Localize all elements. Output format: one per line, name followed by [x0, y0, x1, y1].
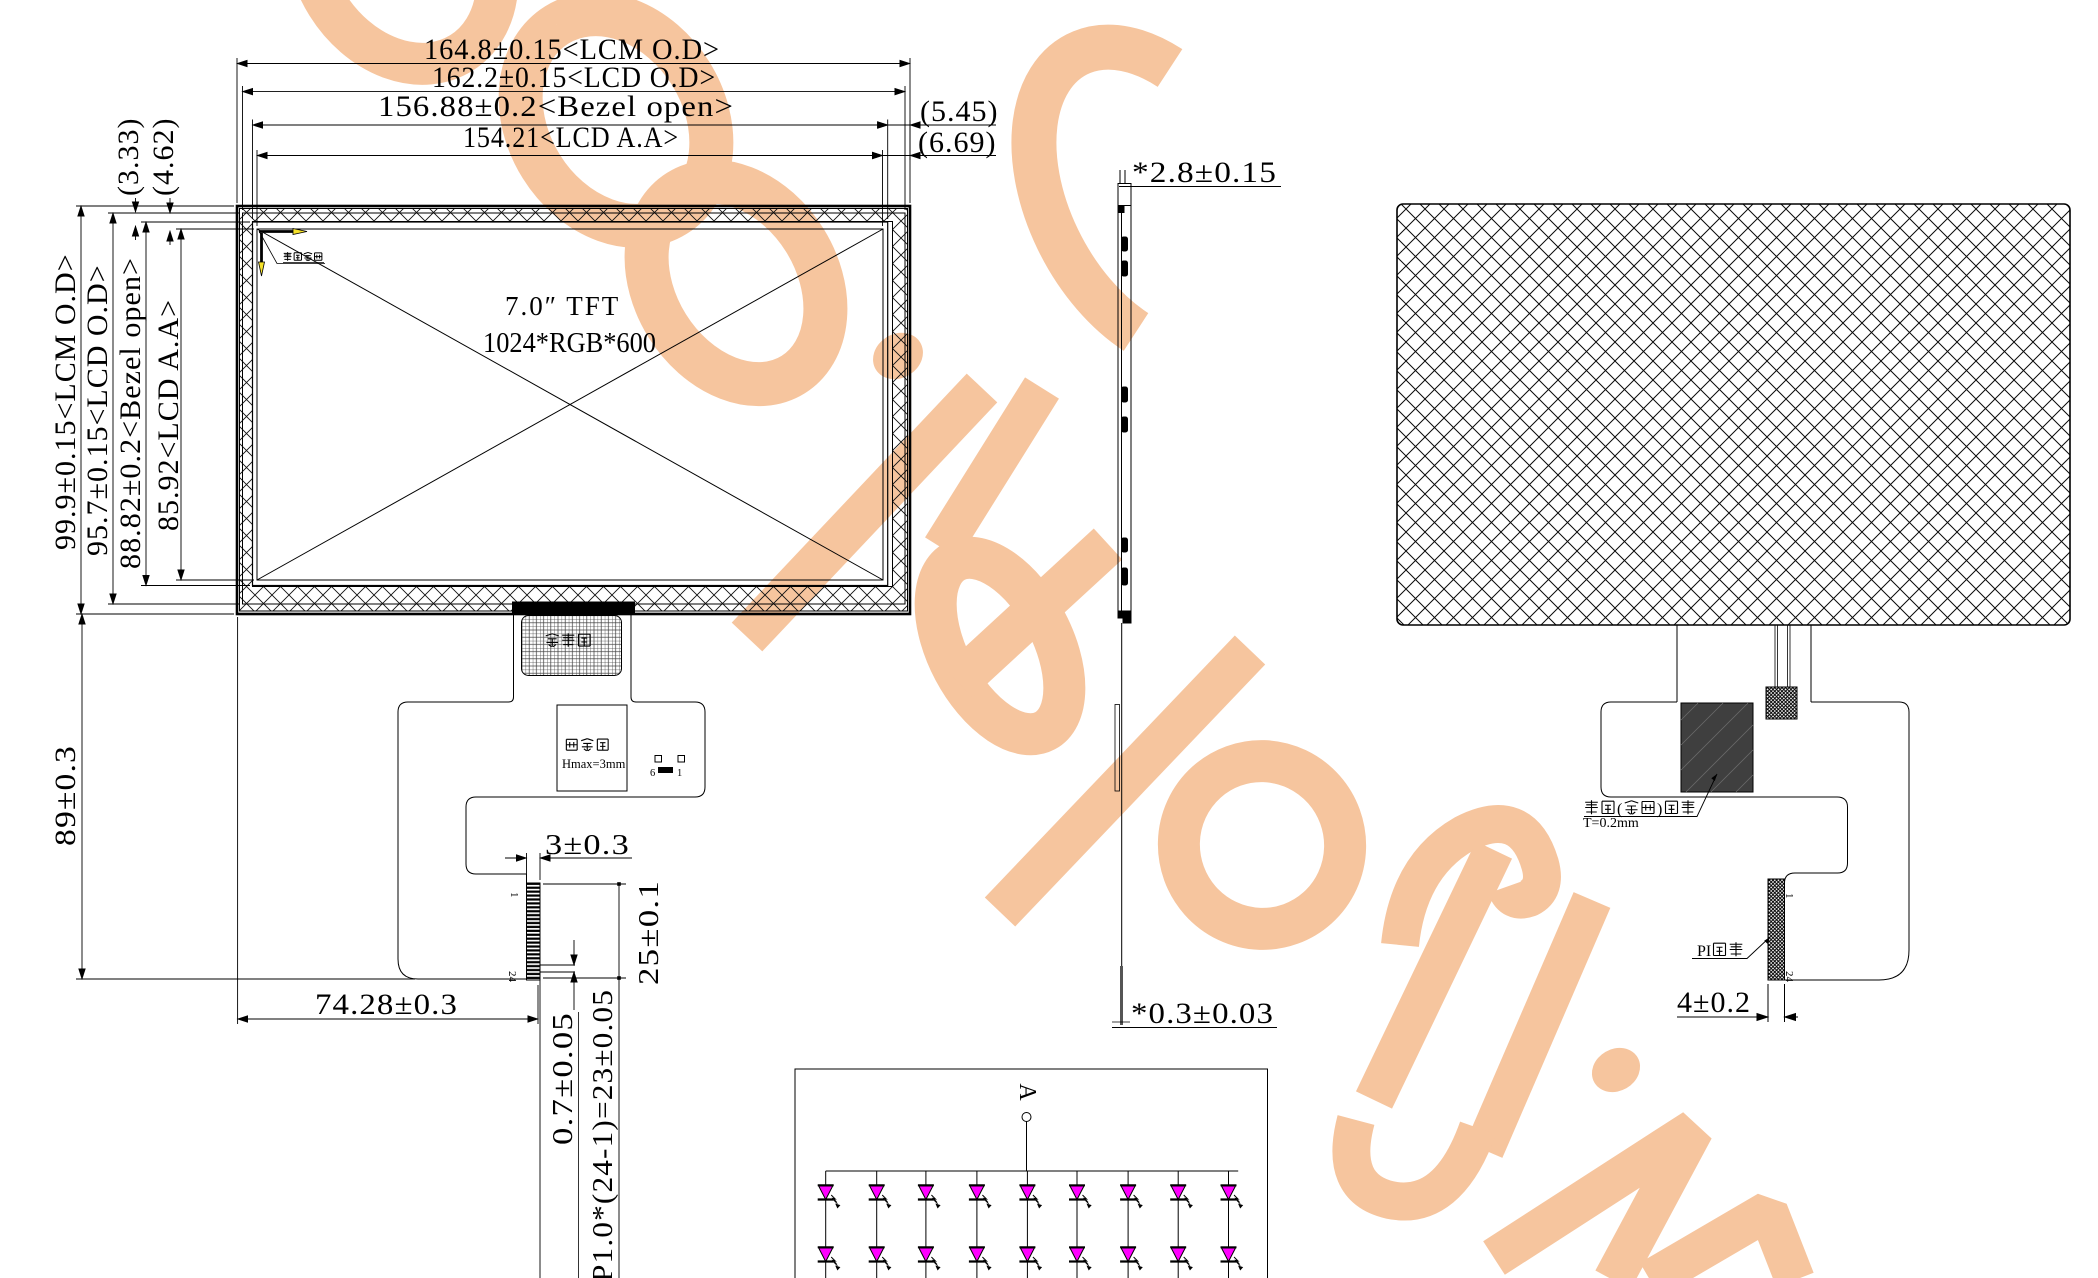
svg-text:P1.0*(24-1)=23±0.05: P1.0*(24-1)=23±0.05: [588, 989, 619, 1278]
svg-text:25±0.1: 25±0.1: [634, 880, 665, 985]
svg-text:*2.8±0.15: *2.8±0.15: [1132, 156, 1277, 189]
svg-text:99.9±0.15<LCM O.D>: 99.9±0.15<LCM O.D>: [49, 253, 82, 550]
svg-text:(3.33): (3.33): [112, 118, 145, 196]
svg-text:6: 6: [650, 768, 655, 779]
svg-text:(6.69): (6.69): [918, 126, 996, 159]
svg-text:156.88±0.2<Bezel open>: 156.88±0.2<Bezel open>: [378, 90, 734, 123]
svg-text:24: 24: [1783, 971, 1795, 983]
svg-text:): ): [1657, 801, 1662, 818]
svg-text:74.28±0.3: 74.28±0.3: [315, 988, 458, 1021]
svg-text:1: 1: [677, 768, 682, 779]
svg-text:95.7±0.15<LCD O.D>: 95.7±0.15<LCD O.D>: [81, 264, 114, 556]
svg-text:A: A: [1014, 1083, 1040, 1101]
svg-text:24: 24: [506, 971, 518, 983]
svg-text:(4.62): (4.62): [147, 118, 180, 196]
svg-text:4±0.2: 4±0.2: [1677, 986, 1751, 1019]
svg-text:3±0.3: 3±0.3: [545, 830, 630, 861]
svg-text:89±0.3: 89±0.3: [49, 745, 82, 846]
svg-text:PI: PI: [1697, 943, 1711, 960]
svg-text:1: 1: [1783, 893, 1795, 899]
svg-text:1: 1: [508, 892, 520, 898]
svg-text:88.82±0.2<Bezel open>: 88.82±0.2<Bezel open>: [114, 257, 147, 569]
svg-text:154.21<LCD A.A>: 154.21<LCD A.A>: [463, 121, 679, 154]
svg-text:85.92<LCD A.A>: 85.92<LCD A.A>: [152, 299, 185, 531]
svg-text:Hmax=3mm: Hmax=3mm: [562, 757, 626, 771]
svg-text:0.7±0.05: 0.7±0.05: [548, 1012, 579, 1145]
svg-text:T=0.2mm: T=0.2mm: [1583, 816, 1639, 831]
svg-text:1024*RGB*600: 1024*RGB*600: [483, 328, 656, 359]
svg-text:*0.3±0.03: *0.3±0.03: [1131, 997, 1274, 1030]
svg-text:7.0″ TFT: 7.0″ TFT: [505, 291, 620, 321]
svg-text:(5.45): (5.45): [920, 95, 998, 128]
